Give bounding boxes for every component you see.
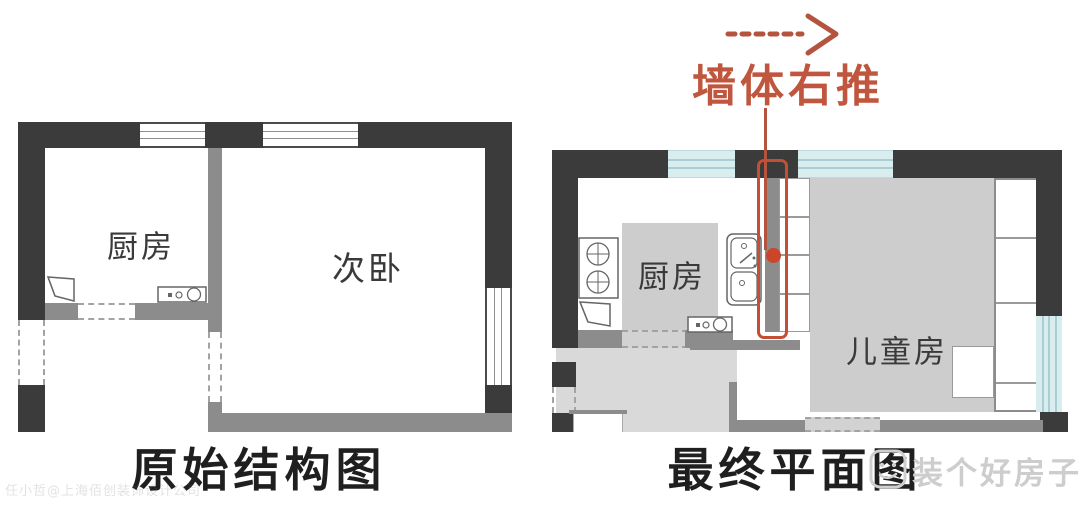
wall-highlight-box (757, 159, 788, 339)
door-opening (622, 330, 688, 348)
wall-segment (578, 330, 622, 348)
wall-segment (358, 122, 512, 148)
window (798, 150, 893, 178)
window (485, 288, 512, 385)
window (140, 122, 205, 148)
wall-segment (552, 362, 576, 387)
wall-segment (18, 122, 140, 148)
credit-watermark: 任小哲@上海佰创装饰设计公司 (5, 480, 201, 499)
entry-door (573, 414, 623, 432)
room-label-kitchen: 厨房 (107, 222, 175, 267)
window (668, 150, 735, 178)
door-opening (208, 332, 222, 402)
door-icon (577, 299, 613, 329)
wall-segment (18, 385, 45, 432)
wall-segment (18, 148, 45, 320)
door-opening (805, 417, 880, 432)
door-icon (45, 274, 77, 304)
wall-segment (552, 150, 668, 178)
annotation-text: 墙体右推 (692, 50, 884, 114)
wall-segment (208, 148, 222, 332)
room-label-kids-room: 儿童房 (846, 327, 948, 372)
bath-room (737, 350, 800, 420)
washer-icon (687, 316, 733, 333)
wall-segment (135, 303, 208, 320)
room-label-bedroom: 次卧 (332, 242, 404, 290)
floor-plan-canvas: 厨房 次卧 原始结构图 (0, 0, 1080, 510)
wall-segment (485, 148, 512, 288)
wall-segment (893, 150, 1062, 178)
window (1036, 316, 1062, 412)
wall-segment (208, 402, 222, 415)
door-opening (78, 303, 135, 320)
window (263, 122, 358, 148)
washer-icon (157, 286, 207, 303)
wall-segment (1036, 178, 1062, 316)
brand-watermark: 装个好房子 (912, 448, 1080, 493)
wall-segment (690, 340, 800, 350)
wall-segment (552, 178, 578, 348)
brand-logo-icon (868, 448, 908, 490)
stove-icon (578, 237, 619, 299)
door-opening (18, 320, 45, 385)
room-label-kitchen: 厨房 (638, 252, 706, 297)
wall-segment (205, 122, 263, 148)
nightstand (952, 346, 994, 398)
wall-segment (45, 303, 78, 320)
wardrobe (994, 178, 1038, 412)
wall-segment (208, 413, 512, 432)
wall-segment (1040, 412, 1068, 432)
wall-segment (733, 420, 800, 432)
